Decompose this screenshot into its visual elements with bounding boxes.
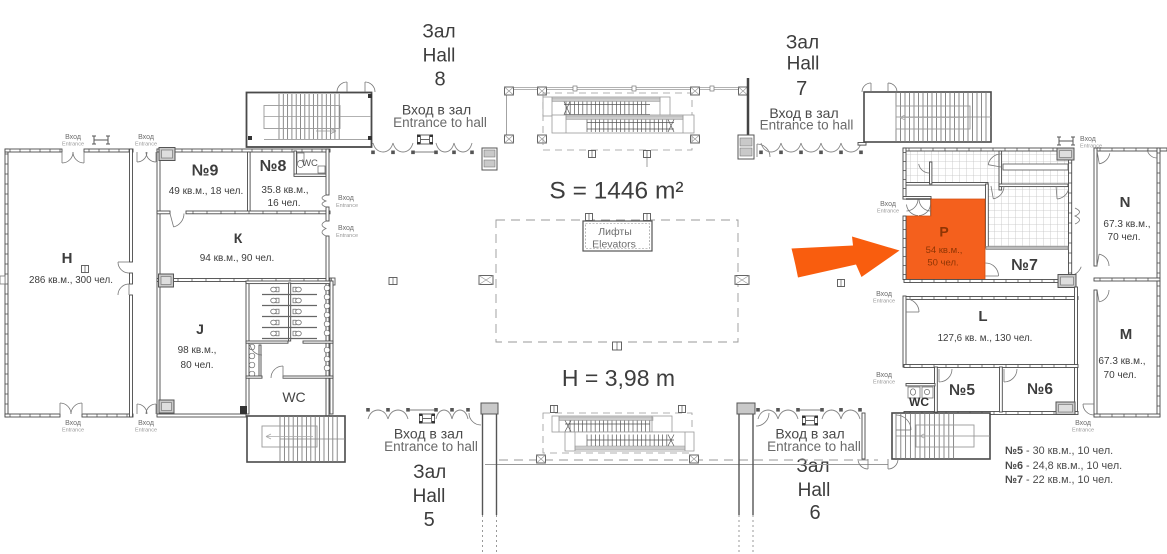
svg-text:Elevators: Elevators bbox=[592, 239, 636, 251]
svg-text:H = 3,98 m: H = 3,98 m bbox=[562, 365, 675, 391]
svg-text:№8: №8 bbox=[260, 158, 287, 175]
svg-text:Entrance to hall: Entrance to hall bbox=[393, 115, 487, 130]
svg-text:Entrance: Entrance bbox=[336, 203, 358, 209]
svg-text:5: 5 bbox=[424, 509, 435, 531]
svg-text:L: L bbox=[978, 308, 987, 325]
svg-text:Вход: Вход bbox=[1075, 420, 1091, 427]
svg-text:M: M bbox=[1120, 326, 1133, 343]
svg-text:50 чел.: 50 чел. bbox=[927, 258, 958, 269]
svg-text:7: 7 bbox=[796, 78, 807, 100]
svg-text:Entrance: Entrance bbox=[1080, 144, 1102, 150]
svg-text:Вход: Вход bbox=[65, 134, 81, 141]
svg-text:16 чел.: 16 чел. bbox=[268, 198, 301, 209]
svg-text:Вход: Вход bbox=[338, 195, 354, 202]
svg-text:Вход: Вход bbox=[1080, 136, 1096, 143]
svg-text:WC: WC bbox=[302, 158, 318, 169]
svg-text:P: P bbox=[939, 224, 948, 240]
svg-text:Вход: Вход bbox=[138, 420, 154, 427]
svg-text:К: К bbox=[234, 230, 243, 246]
svg-text:67.3 кв.м.,: 67.3 кв.м., bbox=[1103, 219, 1150, 230]
svg-text:94 кв.м., 90 чел.: 94 кв.м., 90 чел. bbox=[200, 253, 275, 264]
svg-text:35.8 кв.м.,: 35.8 кв.м., bbox=[261, 185, 308, 196]
svg-text:№5 - 30 кв.м., 10 чел.: №5 - 30 кв.м., 10 чел. bbox=[1005, 445, 1113, 457]
svg-text:Entrance to hall: Entrance to hall bbox=[767, 439, 861, 454]
svg-text:Вход: Вход bbox=[338, 225, 354, 232]
svg-text:Зал: Зал bbox=[413, 462, 446, 483]
svg-text:Entrance: Entrance bbox=[135, 142, 157, 148]
svg-text:286 кв.м., 300 чел.: 286 кв.м., 300 чел. bbox=[29, 275, 113, 286]
svg-text:Вход: Вход bbox=[876, 372, 892, 379]
svg-text:54 кв.м.,: 54 кв.м., bbox=[926, 245, 963, 256]
svg-text:№7 - 22 кв.м., 10 чел.: №7 - 22 кв.м., 10 чел. bbox=[1005, 474, 1113, 486]
svg-text:Entrance to hall: Entrance to hall bbox=[384, 439, 478, 454]
svg-text:Entrance to hall: Entrance to hall bbox=[760, 118, 854, 133]
svg-text:N: N bbox=[1120, 194, 1131, 211]
svg-text:Вход: Вход bbox=[65, 420, 81, 427]
svg-text:70 чел.: 70 чел. bbox=[1104, 370, 1137, 381]
svg-text:S = 1446 m²: S = 1446 m² bbox=[549, 178, 683, 205]
svg-text:Entrance: Entrance bbox=[135, 428, 157, 434]
svg-text:67.3 кв.м.,: 67.3 кв.м., bbox=[1098, 356, 1145, 367]
svg-text:80 чел.: 80 чел. bbox=[181, 360, 214, 371]
svg-text:Hall: Hall bbox=[423, 46, 456, 67]
svg-text:Вход: Вход bbox=[876, 291, 892, 298]
svg-text:J: J bbox=[196, 321, 204, 337]
svg-text:Вход: Вход bbox=[880, 201, 896, 208]
svg-text:WC: WC bbox=[909, 395, 929, 409]
svg-text:Entrance: Entrance bbox=[62, 142, 84, 148]
svg-text:98 кв.м.,: 98 кв.м., bbox=[178, 345, 217, 356]
svg-text:Hall: Hall bbox=[787, 54, 820, 75]
svg-text:Entrance: Entrance bbox=[877, 209, 899, 215]
svg-text:Entrance: Entrance bbox=[1072, 428, 1094, 434]
svg-text:№5: №5 bbox=[949, 382, 975, 399]
svg-text:Hall: Hall bbox=[413, 486, 446, 507]
svg-text:49 кв.м., 18 чел.: 49 кв.м., 18 чел. bbox=[169, 186, 244, 197]
svg-text:№9: №9 bbox=[192, 163, 219, 180]
svg-text:127,6 кв. м., 130 чел.: 127,6 кв. м., 130 чел. bbox=[938, 333, 1033, 344]
svg-text:Entrance: Entrance bbox=[62, 428, 84, 434]
svg-text:Лифты: Лифты bbox=[598, 226, 632, 238]
svg-text:№6 - 24,8 кв.м., 10 чел.: №6 - 24,8 кв.м., 10 чел. bbox=[1005, 460, 1122, 472]
svg-text:Зал: Зал bbox=[422, 22, 455, 43]
svg-text:Entrance: Entrance bbox=[873, 380, 895, 386]
svg-text:Entrance: Entrance bbox=[336, 233, 358, 239]
svg-text:№7: №7 bbox=[1011, 257, 1038, 274]
svg-text:H: H bbox=[62, 250, 73, 267]
svg-text:6: 6 bbox=[809, 502, 820, 524]
svg-text:Зал: Зал bbox=[786, 33, 819, 54]
svg-text:№6: №6 bbox=[1027, 381, 1053, 398]
svg-text:8: 8 bbox=[434, 69, 445, 91]
svg-text:WC: WC bbox=[282, 389, 305, 405]
svg-text:Зал: Зал bbox=[796, 456, 829, 477]
svg-text:Вход: Вход bbox=[138, 134, 154, 141]
svg-text:70 чел.: 70 чел. bbox=[1108, 232, 1141, 243]
svg-text:Entrance: Entrance bbox=[873, 299, 895, 305]
svg-text:Hall: Hall bbox=[798, 480, 831, 501]
